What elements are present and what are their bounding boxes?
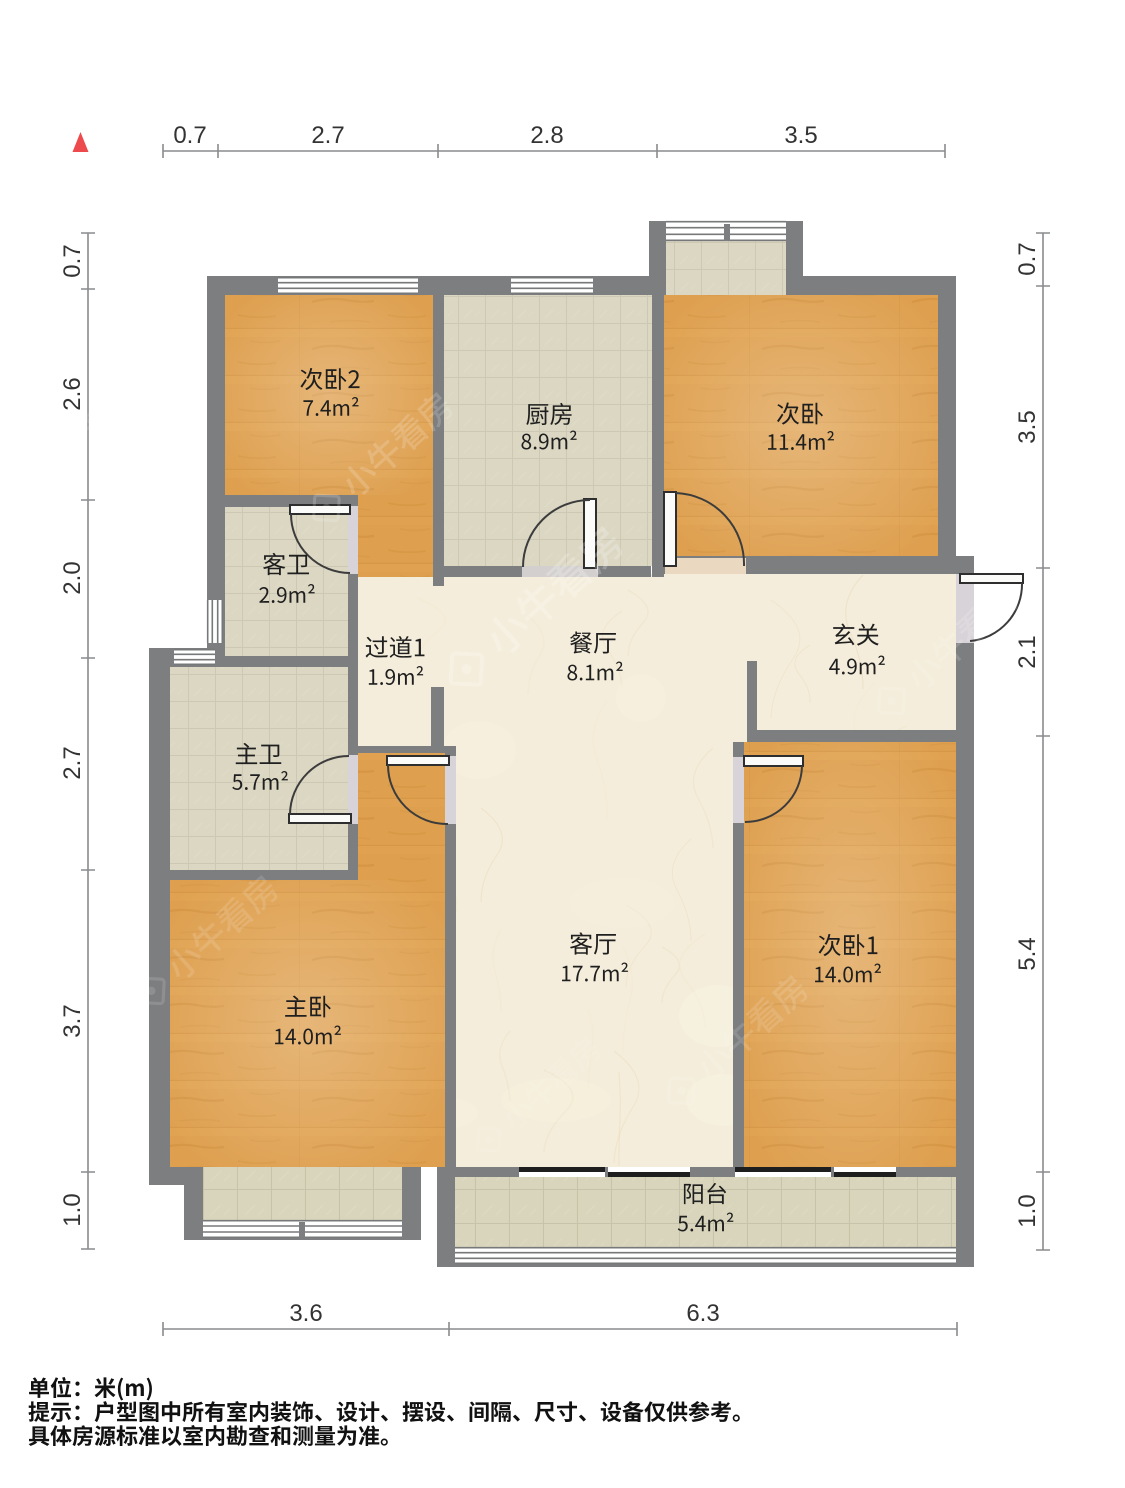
svg-text:3.5: 3.5 xyxy=(784,122,817,149)
svg-text:2.0: 2.0 xyxy=(59,561,86,594)
svg-text:5.4: 5.4 xyxy=(1014,937,1041,970)
svg-text:2.6: 2.6 xyxy=(59,377,86,410)
svg-text:6.3: 6.3 xyxy=(686,1300,719,1327)
svg-text:0.7: 0.7 xyxy=(59,244,86,277)
svg-text:0.7: 0.7 xyxy=(173,122,206,149)
svg-text:2.1: 2.1 xyxy=(1014,635,1041,668)
svg-text:1.0: 1.0 xyxy=(1014,1194,1041,1227)
svg-text:1.0: 1.0 xyxy=(59,1193,86,1226)
svg-text:2.8: 2.8 xyxy=(530,122,563,149)
svg-text:0.7: 0.7 xyxy=(1014,242,1041,275)
svg-text:2.7: 2.7 xyxy=(59,746,86,779)
svg-text:3.7: 3.7 xyxy=(59,1004,86,1037)
svg-text:3.5: 3.5 xyxy=(1014,410,1041,443)
svg-text:2.7: 2.7 xyxy=(311,122,344,149)
svg-text:3.6: 3.6 xyxy=(289,1300,322,1327)
